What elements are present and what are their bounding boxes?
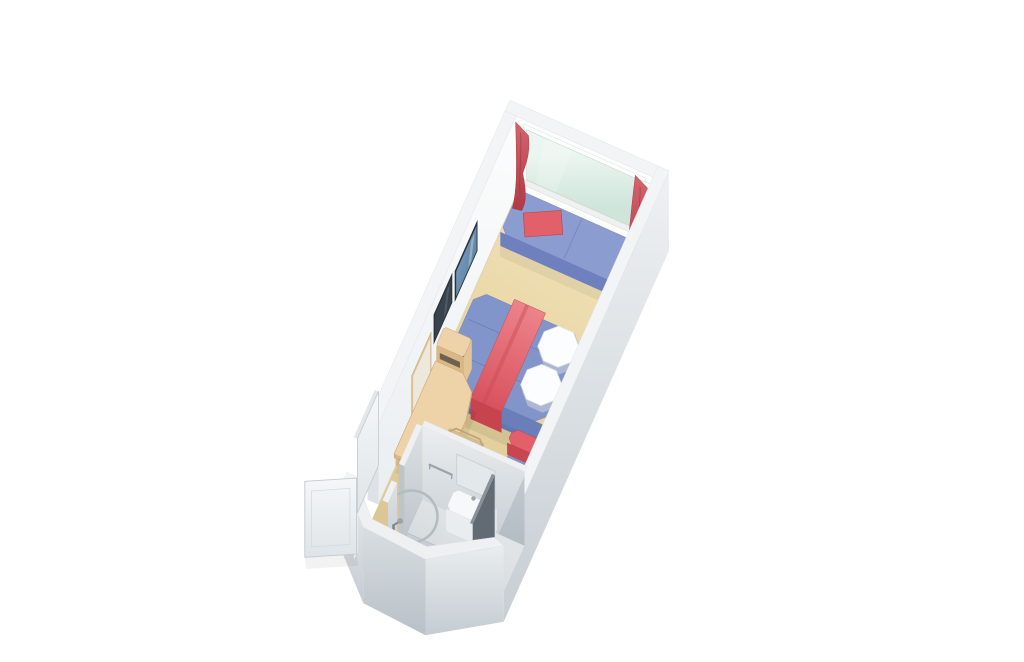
stateroom-floorplan-svg	[0, 0, 1024, 662]
pod-wall-outer-3	[426, 546, 504, 635]
window-seat-pillow	[523, 210, 563, 237]
floorplan-canvas	[0, 0, 1024, 662]
vanity-faucet	[471, 496, 475, 500]
shower-head-cap	[397, 518, 403, 524]
stateroom-cutaway	[305, 100, 669, 635]
bathroom-partition-end	[399, 464, 405, 540]
